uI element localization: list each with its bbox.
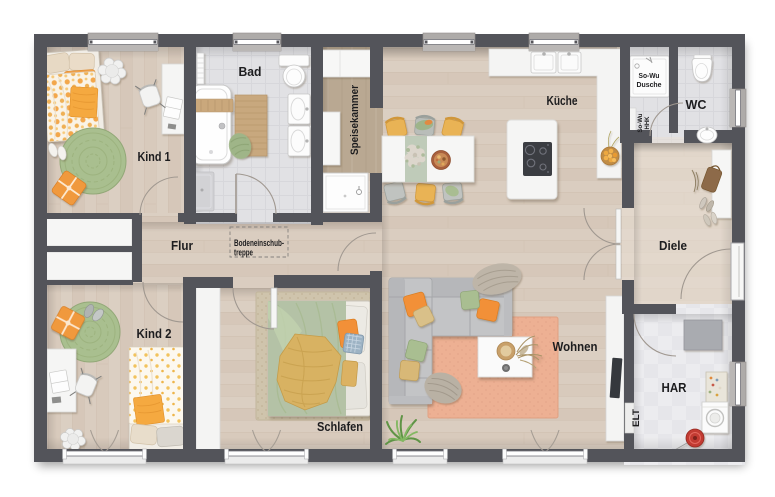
svg-text:Schlafen: Schlafen [317,420,363,434]
svg-text:Bad: Bad [239,65,262,79]
svg-text:Bodeneinschub-: Bodeneinschub- [234,238,284,248]
svg-text:Küche: Küche [547,94,578,108]
svg-text:So-Wu: So-Wu [637,113,644,132]
svg-text:Flur: Flur [171,239,193,253]
svg-text:WC: WC [686,98,707,112]
svg-text:Diele: Diele [659,239,687,253]
svg-text:Speisekammer: Speisekammer [349,84,361,155]
svg-text:treppe: treppe [234,248,253,258]
svg-text:Wohnen: Wohnen [553,340,598,354]
svg-text:Kind 1: Kind 1 [138,150,171,164]
svg-text:HAR: HAR [662,381,687,395]
svg-text:Dusche: Dusche [637,80,662,89]
svg-text:ELT: ELT [631,408,641,427]
svg-text:Kind 2: Kind 2 [137,327,172,341]
svg-text:HHK: HHK [644,116,651,129]
svg-text:So-Wu: So-Wu [639,71,660,80]
